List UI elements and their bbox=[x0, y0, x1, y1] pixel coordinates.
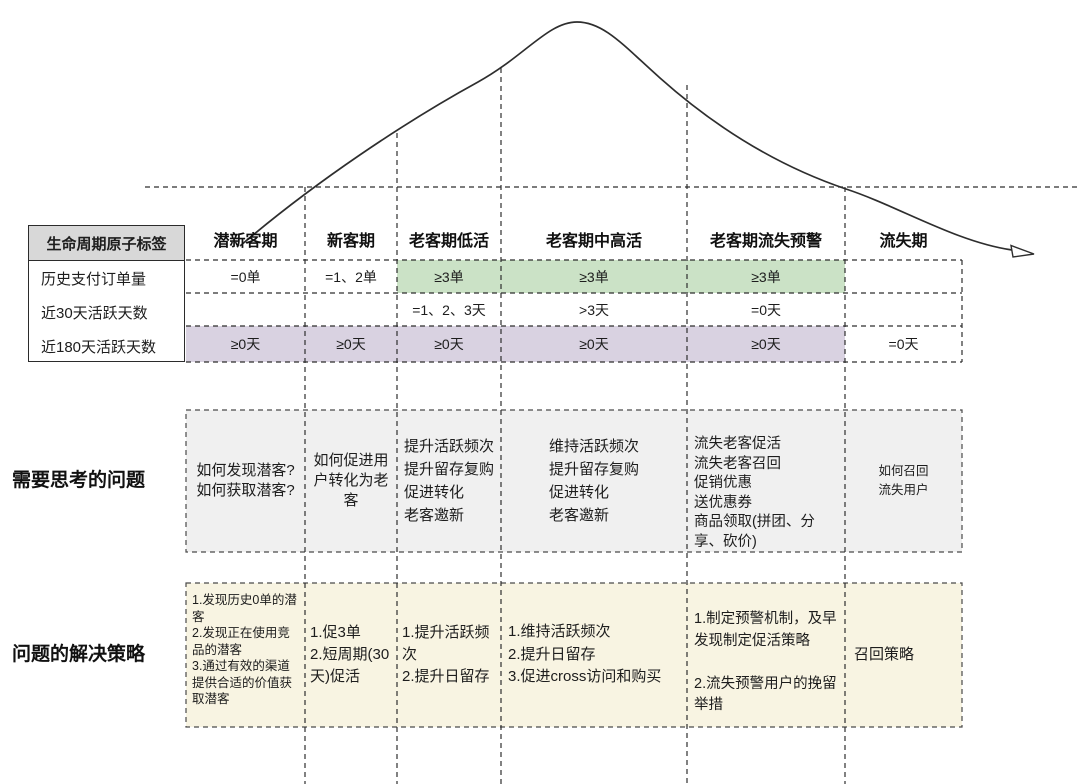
active30-value: =0天 bbox=[687, 293, 845, 326]
orders-value: ≥3单 bbox=[687, 260, 845, 293]
active180-value: ≥0天 bbox=[501, 326, 687, 362]
active180-value: ≥0天 bbox=[687, 326, 845, 362]
row-label-orders: 历史支付订单量 bbox=[29, 261, 184, 295]
orders-value: =0单 bbox=[186, 260, 305, 293]
questions-section-label: 需要思考的问题 bbox=[12, 469, 145, 493]
questions-cell-low-active: 提升活跃频次 提升留存复购 促进转化 老客邀新 bbox=[397, 410, 501, 552]
questions-cell-mid-high: 维持活跃频次 提升留存复购 促进转化 老客邀新 bbox=[501, 410, 687, 552]
active180-value: ≥0天 bbox=[186, 326, 305, 362]
strategy-cell-low-active: 1.提升活跃频次 2.提升日留存 bbox=[397, 583, 496, 727]
active180-value: ≥0天 bbox=[305, 326, 397, 362]
row-label-active180: 近180天活跃天数 bbox=[29, 329, 184, 363]
arrowhead-icon bbox=[1011, 246, 1034, 258]
column-header-low-active: 老客期低活 bbox=[397, 222, 501, 256]
strategy-cell-churn-warn: 1.制定预警机制，及早发现制定促活策略 2.流失预警用户的挽留举措 bbox=[687, 583, 837, 727]
active180-value: =0天 bbox=[845, 326, 962, 362]
orders-value: =1、2单 bbox=[305, 260, 397, 293]
strategy-cell-churned: 召回策略 bbox=[845, 583, 962, 727]
questions-cell-new: 如何促进用户转化为老客 bbox=[307, 410, 395, 552]
row-label-active30: 近30天活跃天数 bbox=[29, 295, 184, 329]
tag-legend-box: 生命周期原子标签 历史支付订单量 近30天活跃天数 近180天活跃天数 bbox=[28, 225, 185, 362]
orders-value: ≥3单 bbox=[501, 260, 687, 293]
active30-value: =1、2、3天 bbox=[397, 293, 501, 326]
column-header-churn-warn: 老客期流失预警 bbox=[687, 222, 845, 256]
active180-value: ≥0天 bbox=[397, 326, 501, 362]
questions-cell-churned: 如何召回 流失用户 bbox=[845, 410, 962, 552]
questions-cell-churn-warn: 流失老客促活 流失老客召回 促销优惠 送优惠券 商品领取(拼团、分享、砍价) bbox=[687, 410, 832, 552]
column-header-potential: 潜新客期 bbox=[186, 222, 305, 256]
column-header-mid-high: 老客期中高活 bbox=[501, 222, 687, 256]
strategy-section-label: 问题的解决策略 bbox=[12, 643, 145, 667]
active30-value: >3天 bbox=[501, 293, 687, 326]
column-header-new: 新客期 bbox=[305, 222, 397, 256]
strategy-cell-new: 1.促3单 2.短周期(30天)促活 bbox=[305, 583, 395, 727]
orders-value: ≥3单 bbox=[397, 260, 501, 293]
lifecycle-diagram: 生命周期原子标签 历史支付订单量 近30天活跃天数 近180天活跃天数 潜新客期… bbox=[0, 0, 1080, 784]
questions-cell-potential: 如何发现潜客? 如何获取潜客? bbox=[186, 410, 305, 552]
strategy-cell-potential: 1.发现历史0单的潜客 2.发现正在使用竞品的潜客 3.通过有效的渠道提供合适的… bbox=[186, 583, 302, 727]
tag-legend-title: 生命周期原子标签 bbox=[29, 226, 184, 261]
strategy-cell-mid-high: 1.维持活跃频次 2.提升日留存 3.促进cross访问和购买 bbox=[501, 583, 687, 727]
lifecycle-curve bbox=[240, 22, 1012, 250]
column-header-churned: 流失期 bbox=[845, 222, 962, 256]
